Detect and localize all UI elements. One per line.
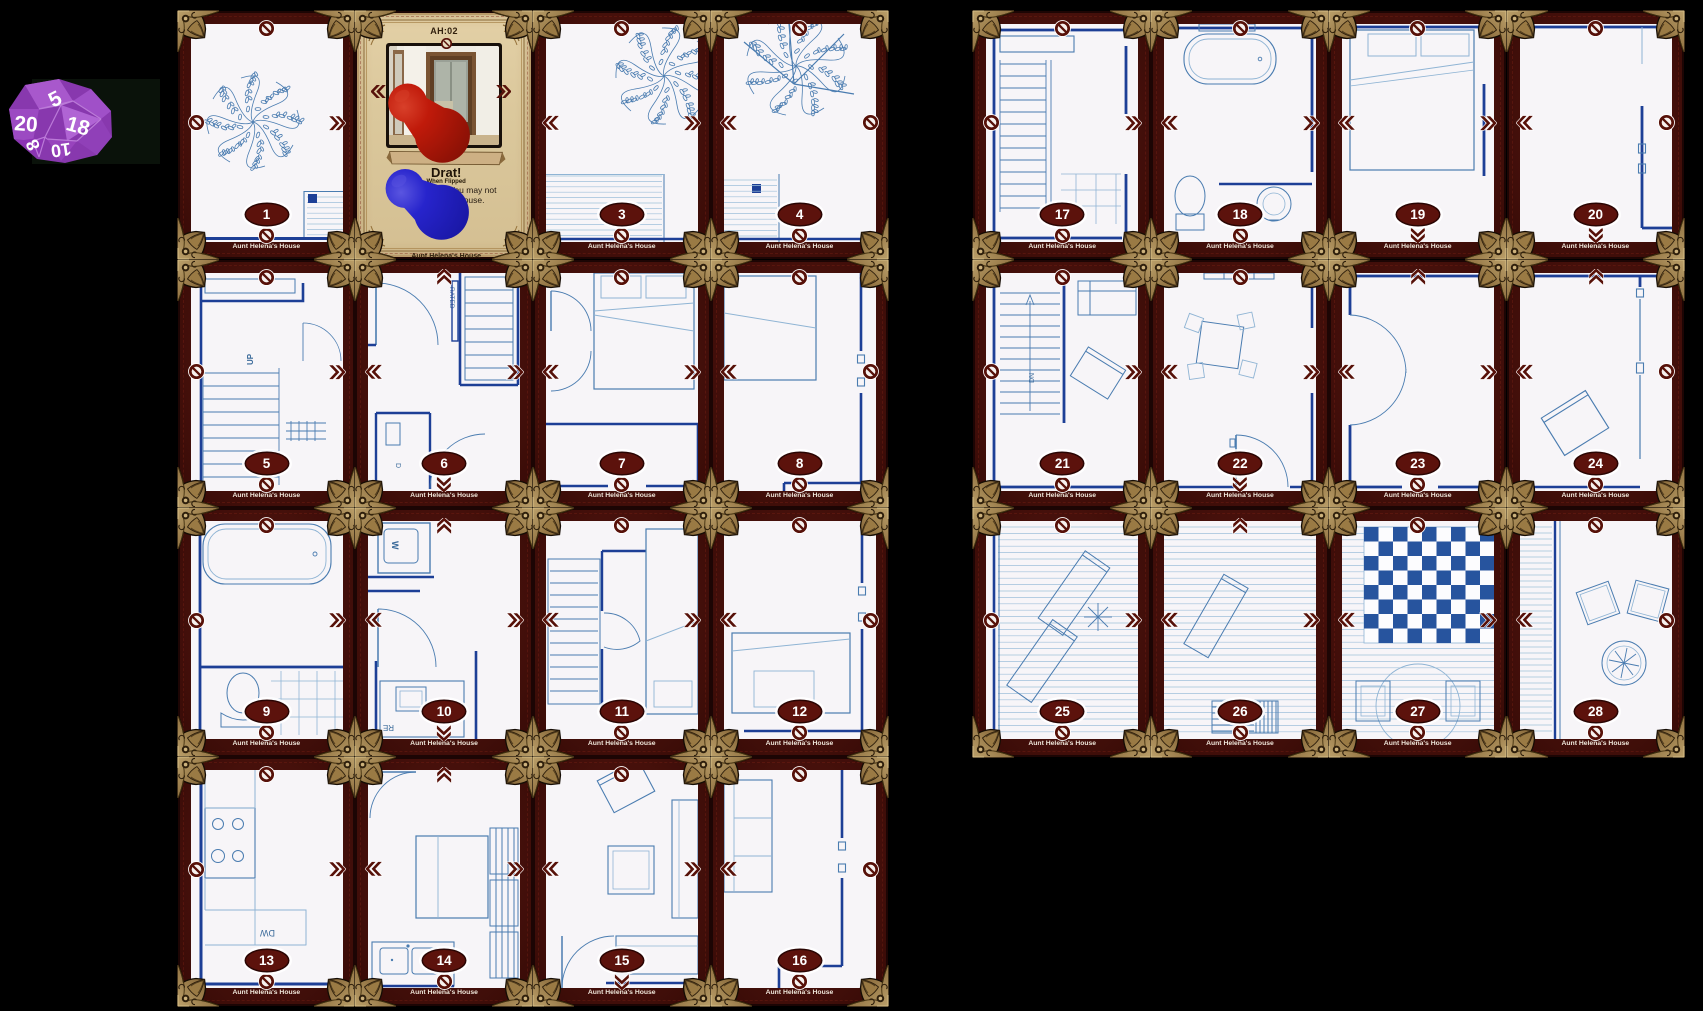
svg-text:20: 20 [14,112,39,137]
svg-text:DN: DN [1029,372,1036,382]
svg-text:10: 10 [50,139,73,162]
svg-text:DW: DW [259,928,274,938]
svg-text:UP: UP [246,353,255,365]
